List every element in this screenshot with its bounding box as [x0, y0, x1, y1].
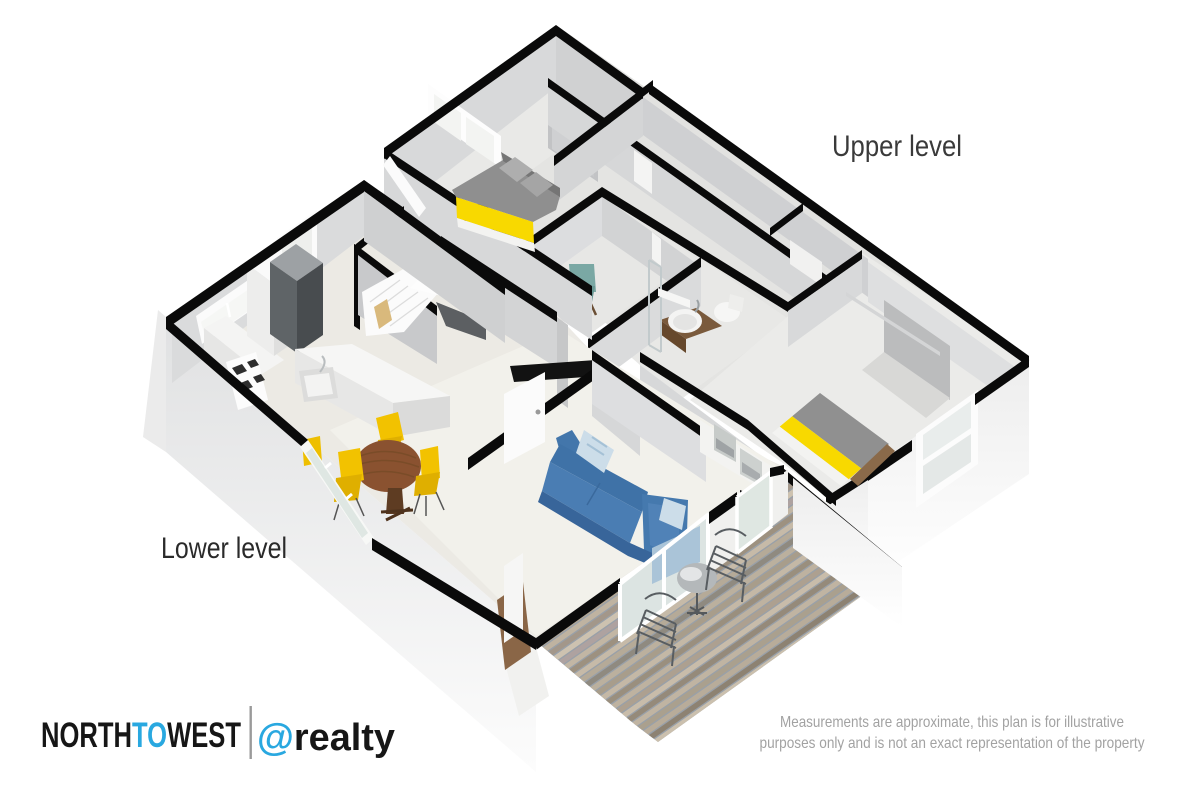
svg-text:Upper level: Upper level	[832, 130, 962, 163]
svg-text:Measurements are approximate,: Measurements are approximate, this plan …	[780, 714, 1124, 731]
svg-text:NORTHTOWEST: NORTHTOWEST	[41, 716, 241, 755]
svg-text:Lower level: Lower level	[161, 532, 287, 565]
svg-text:purposes only and is not an ex: purposes only and is not an exact repres…	[760, 735, 1145, 752]
svg-text:@realty: @realty	[257, 717, 395, 759]
